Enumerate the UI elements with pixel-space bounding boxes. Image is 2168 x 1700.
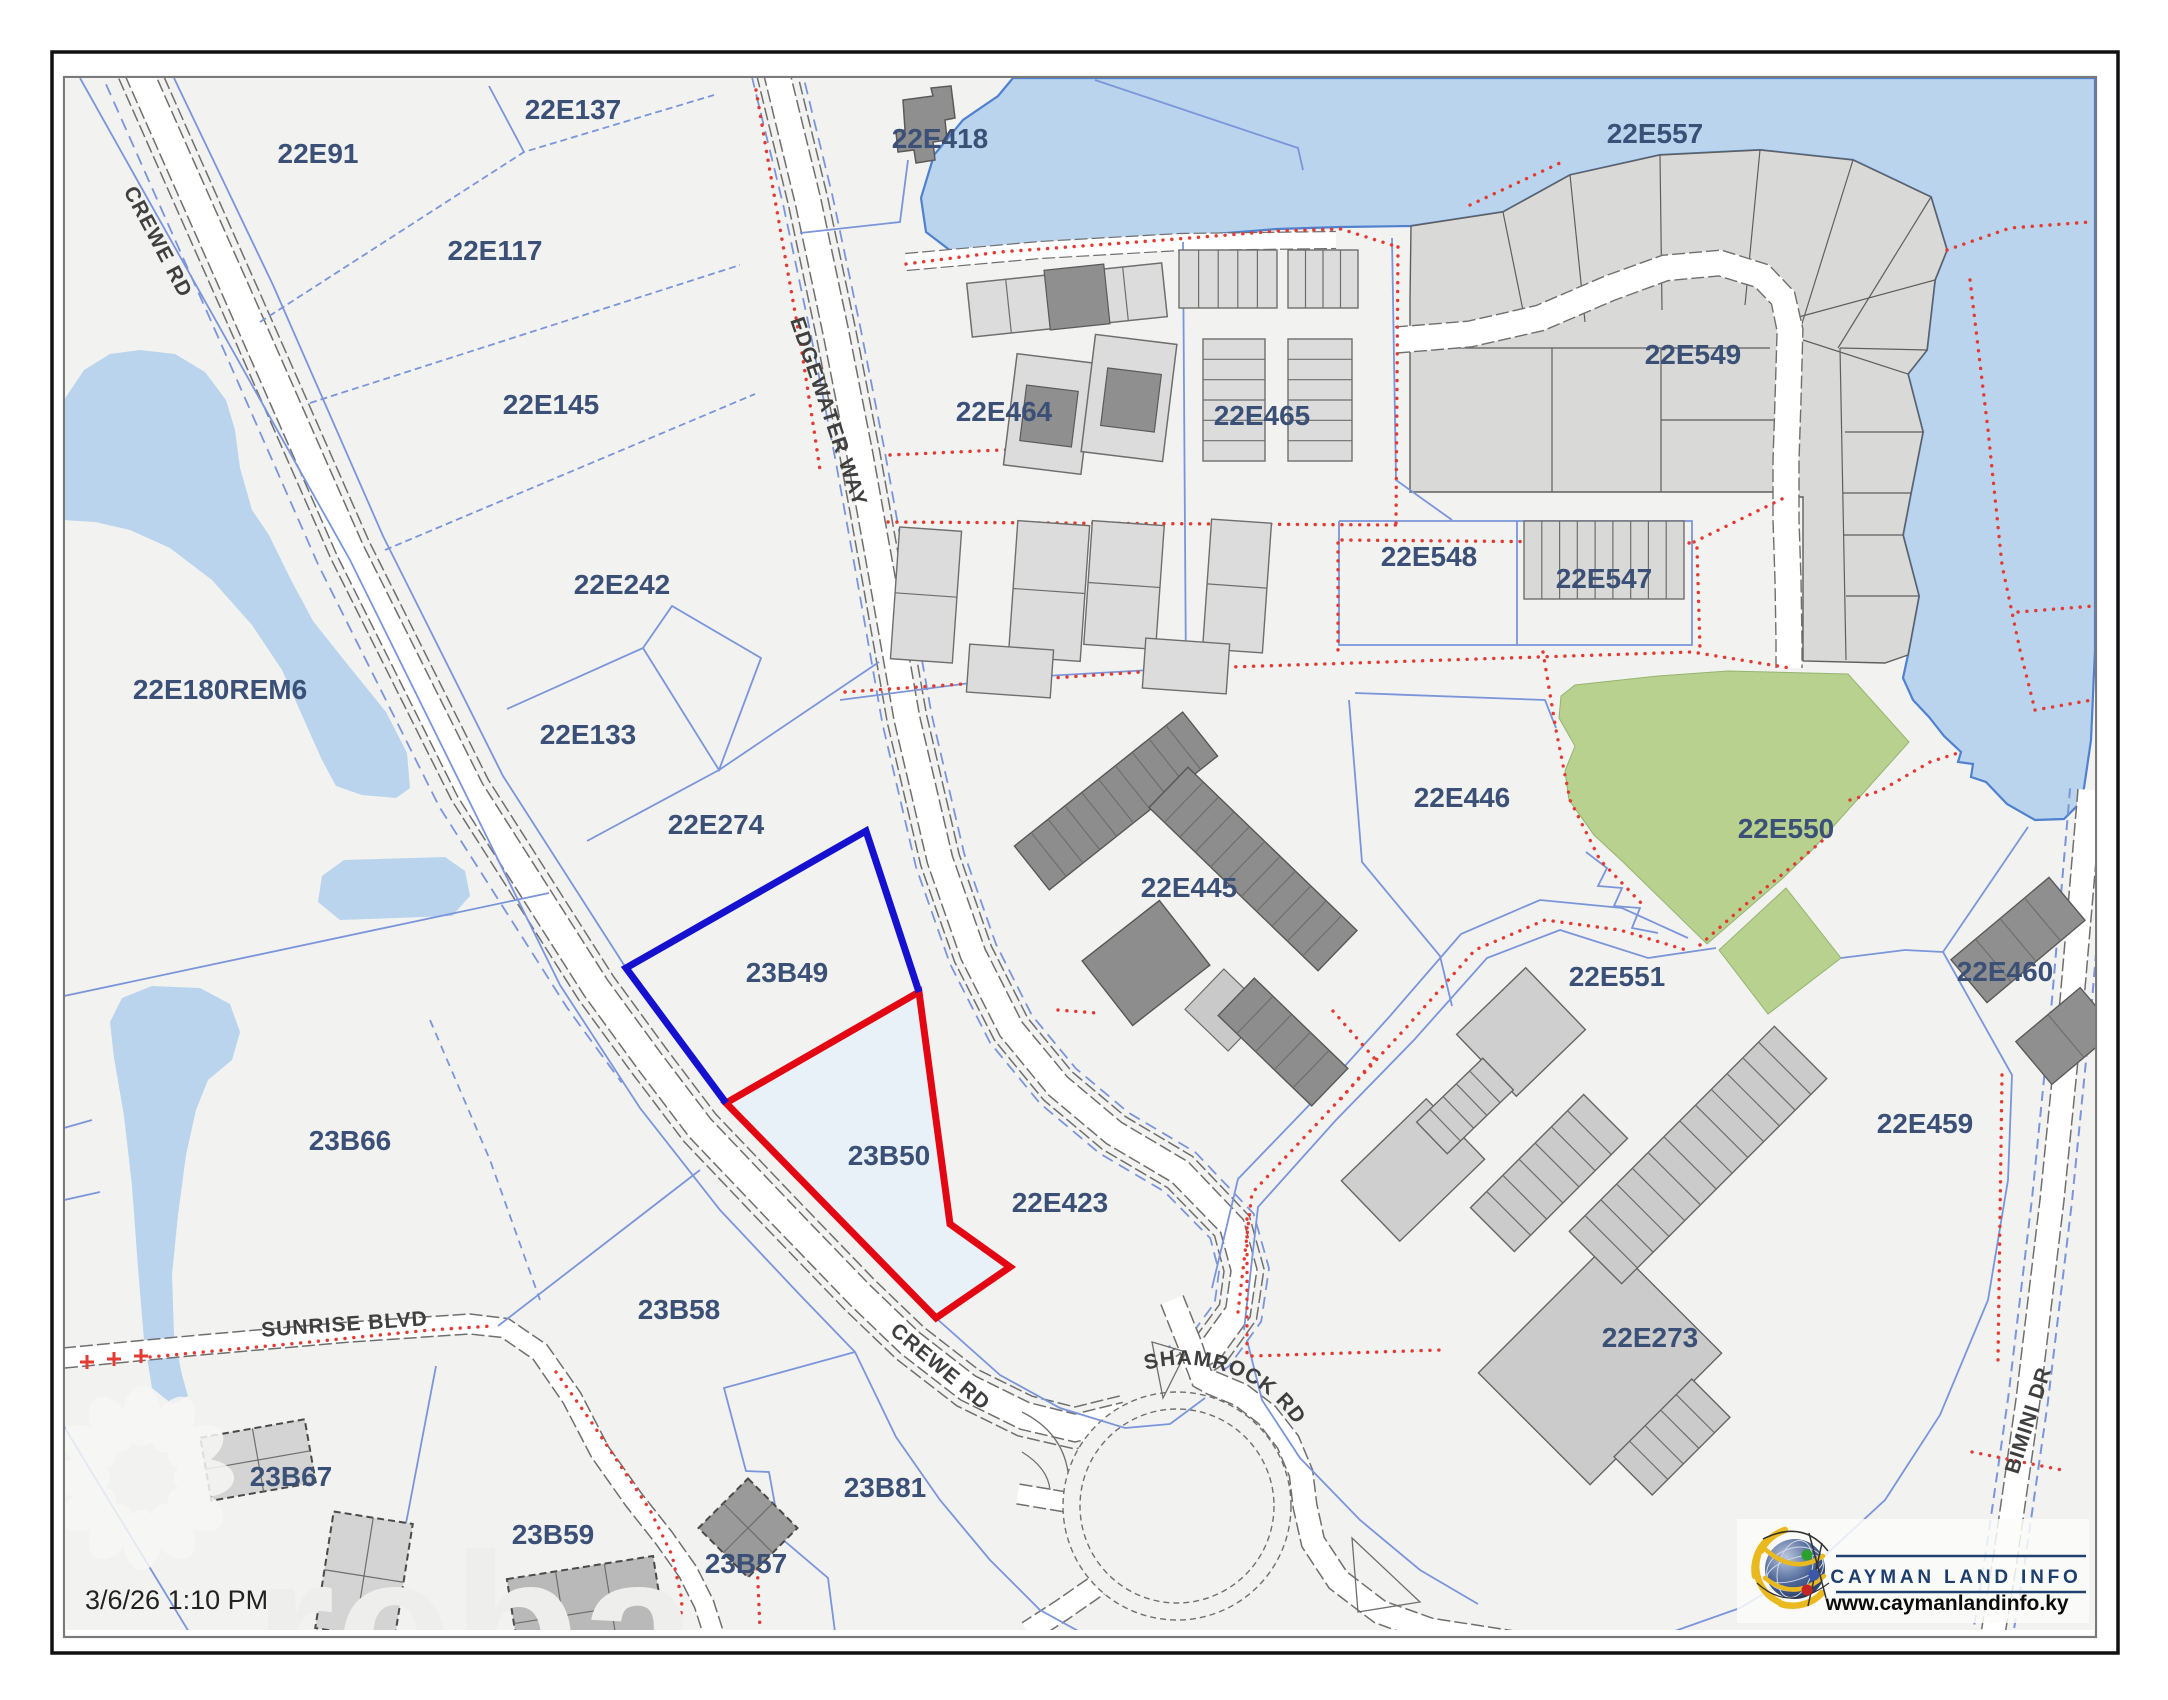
svg-text:22E418: 22E418 xyxy=(892,123,989,154)
svg-text:22E274: 22E274 xyxy=(668,809,765,840)
svg-text:23B81: 23B81 xyxy=(844,1472,927,1503)
svg-text:22E145: 22E145 xyxy=(503,389,600,420)
svg-text:22E445: 22E445 xyxy=(1141,872,1238,903)
svg-text:22E180REM6: 22E180REM6 xyxy=(133,674,307,705)
svg-text:www.caymanlandinfo.ky: www.caymanlandinfo.ky xyxy=(1824,1592,2068,1615)
svg-text:22E273: 22E273 xyxy=(1602,1322,1699,1353)
svg-text:22E459: 22E459 xyxy=(1877,1108,1974,1139)
svg-text:22E423: 22E423 xyxy=(1012,1187,1109,1218)
svg-text:22E548: 22E548 xyxy=(1381,541,1478,572)
svg-text:22E549: 22E549 xyxy=(1645,339,1742,370)
svg-text:23B58: 23B58 xyxy=(638,1294,721,1325)
svg-text:22E133: 22E133 xyxy=(540,719,637,750)
svg-text:22E547: 22E547 xyxy=(1556,563,1653,594)
svg-text:22E551: 22E551 xyxy=(1569,961,1666,992)
svg-text:22E137: 22E137 xyxy=(525,94,622,125)
svg-text:22E550: 22E550 xyxy=(1738,813,1835,844)
svg-text:22E460: 22E460 xyxy=(1957,956,2054,987)
svg-text:22E446: 22E446 xyxy=(1414,782,1511,813)
svg-text:CAYMAN LAND INFO: CAYMAN LAND INFO xyxy=(1830,1567,2081,1588)
svg-text:3/6/26 1:10 PM: 3/6/26 1:10 PM xyxy=(85,1585,268,1615)
svg-text:22E465: 22E465 xyxy=(1214,400,1311,431)
svg-text:23B50: 23B50 xyxy=(848,1140,931,1171)
svg-text:23B66: 23B66 xyxy=(309,1125,392,1156)
svg-text:22E557: 22E557 xyxy=(1607,118,1704,149)
svg-text:22E464: 22E464 xyxy=(956,396,1053,427)
svg-text:23B49: 23B49 xyxy=(746,957,829,988)
svg-text:22E91: 22E91 xyxy=(278,138,359,169)
svg-text:22E242: 22E242 xyxy=(574,569,671,600)
svg-text:23B57: 23B57 xyxy=(705,1548,788,1579)
svg-text:22E117: 22E117 xyxy=(448,235,543,266)
svg-text:23B67: 23B67 xyxy=(250,1461,333,1492)
